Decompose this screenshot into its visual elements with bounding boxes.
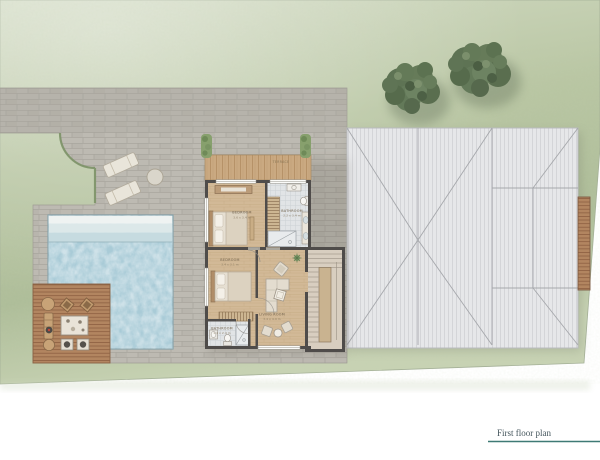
hedge-right [300,134,311,158]
deck-dining-table [61,316,88,335]
deck-round-table [42,298,55,311]
bathroom-1-label: BATHROOM [281,209,303,213]
bathroom-2-dims: 1.4 x 2.4 m [213,331,231,335]
master-bedroom-label: BEDROOM [232,211,251,215]
side-table-icon [274,329,282,337]
terrace-label: TERRACE [272,160,290,164]
wood-deck [33,284,110,363]
house: TERRACE [201,134,349,354]
window-left-2 [205,268,209,306]
window-top-1 [216,180,256,184]
bedroom-2-label: BEDROOM [220,258,239,262]
console-icon [215,186,252,194]
bed-2-icon [211,271,251,302]
coffee-table-icon [274,289,286,301]
bed-bench-icon [250,217,254,240]
shower-icon [268,231,296,247]
living-room-dims: 3.4 x 4.9 m [263,317,281,321]
floor-plan-rendering: TERRACE [0,0,600,460]
living-room-label: LIVING ROOM [259,313,285,317]
deck-round-chair [43,339,54,350]
title-block: First floor plan [488,428,600,442]
side-deck [578,197,590,290]
pool-steps [49,216,173,242]
shelf-icon [287,184,301,191]
driveway [0,88,347,133]
bathroom-1-dims: 2.2 x 3.4 m [283,214,301,218]
window-top-2 [270,180,306,184]
toilet-2-icon [224,334,232,345]
hedge-left [201,134,212,158]
master-bedroom-dims: 3.6 x 3.4 m [233,215,251,219]
roof [347,128,581,351]
deck-chair-4 [77,339,89,350]
deck-grill [46,327,53,334]
terrace-porch [205,155,311,180]
patio-side-table [147,169,163,185]
plan-title: First floor plan [497,428,551,438]
window-left-1 [205,198,209,242]
window-bottom-1 [258,346,300,350]
staircase [308,250,342,349]
bedroom-2-dims: 3.4 x 3.1 m [221,263,239,267]
deck-lounge [44,313,53,339]
deck-chair-3 [61,339,73,350]
grass-edge-fade [0,381,590,390]
